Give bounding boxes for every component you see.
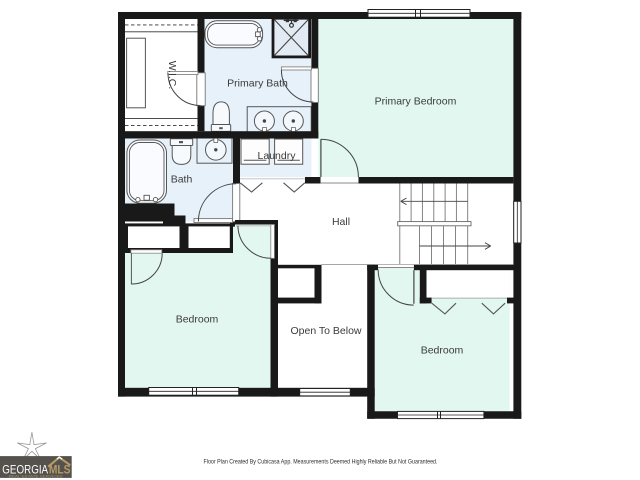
svg-text:Hall: Hall: [332, 216, 350, 228]
svg-text:Bedroom: Bedroom: [176, 314, 219, 326]
svg-text:REAL ESTATE SERVICES: REAL ESTATE SERVICES: [9, 475, 63, 479]
svg-text:W.I.C.: W.I.C.: [166, 61, 178, 90]
svg-text:Bath: Bath: [171, 174, 193, 186]
svg-text:Floor Plan Created By Cubicasa: Floor Plan Created By Cubicasa App. Meas…: [204, 459, 438, 466]
svg-text:Laundry: Laundry: [258, 150, 297, 162]
svg-text:Bedroom: Bedroom: [421, 345, 464, 357]
svg-text:Primary Bedroom: Primary Bedroom: [375, 96, 457, 108]
svg-text:Primary Bath: Primary Bath: [227, 78, 288, 90]
svg-text:Open To Below: Open To Below: [290, 325, 361, 337]
